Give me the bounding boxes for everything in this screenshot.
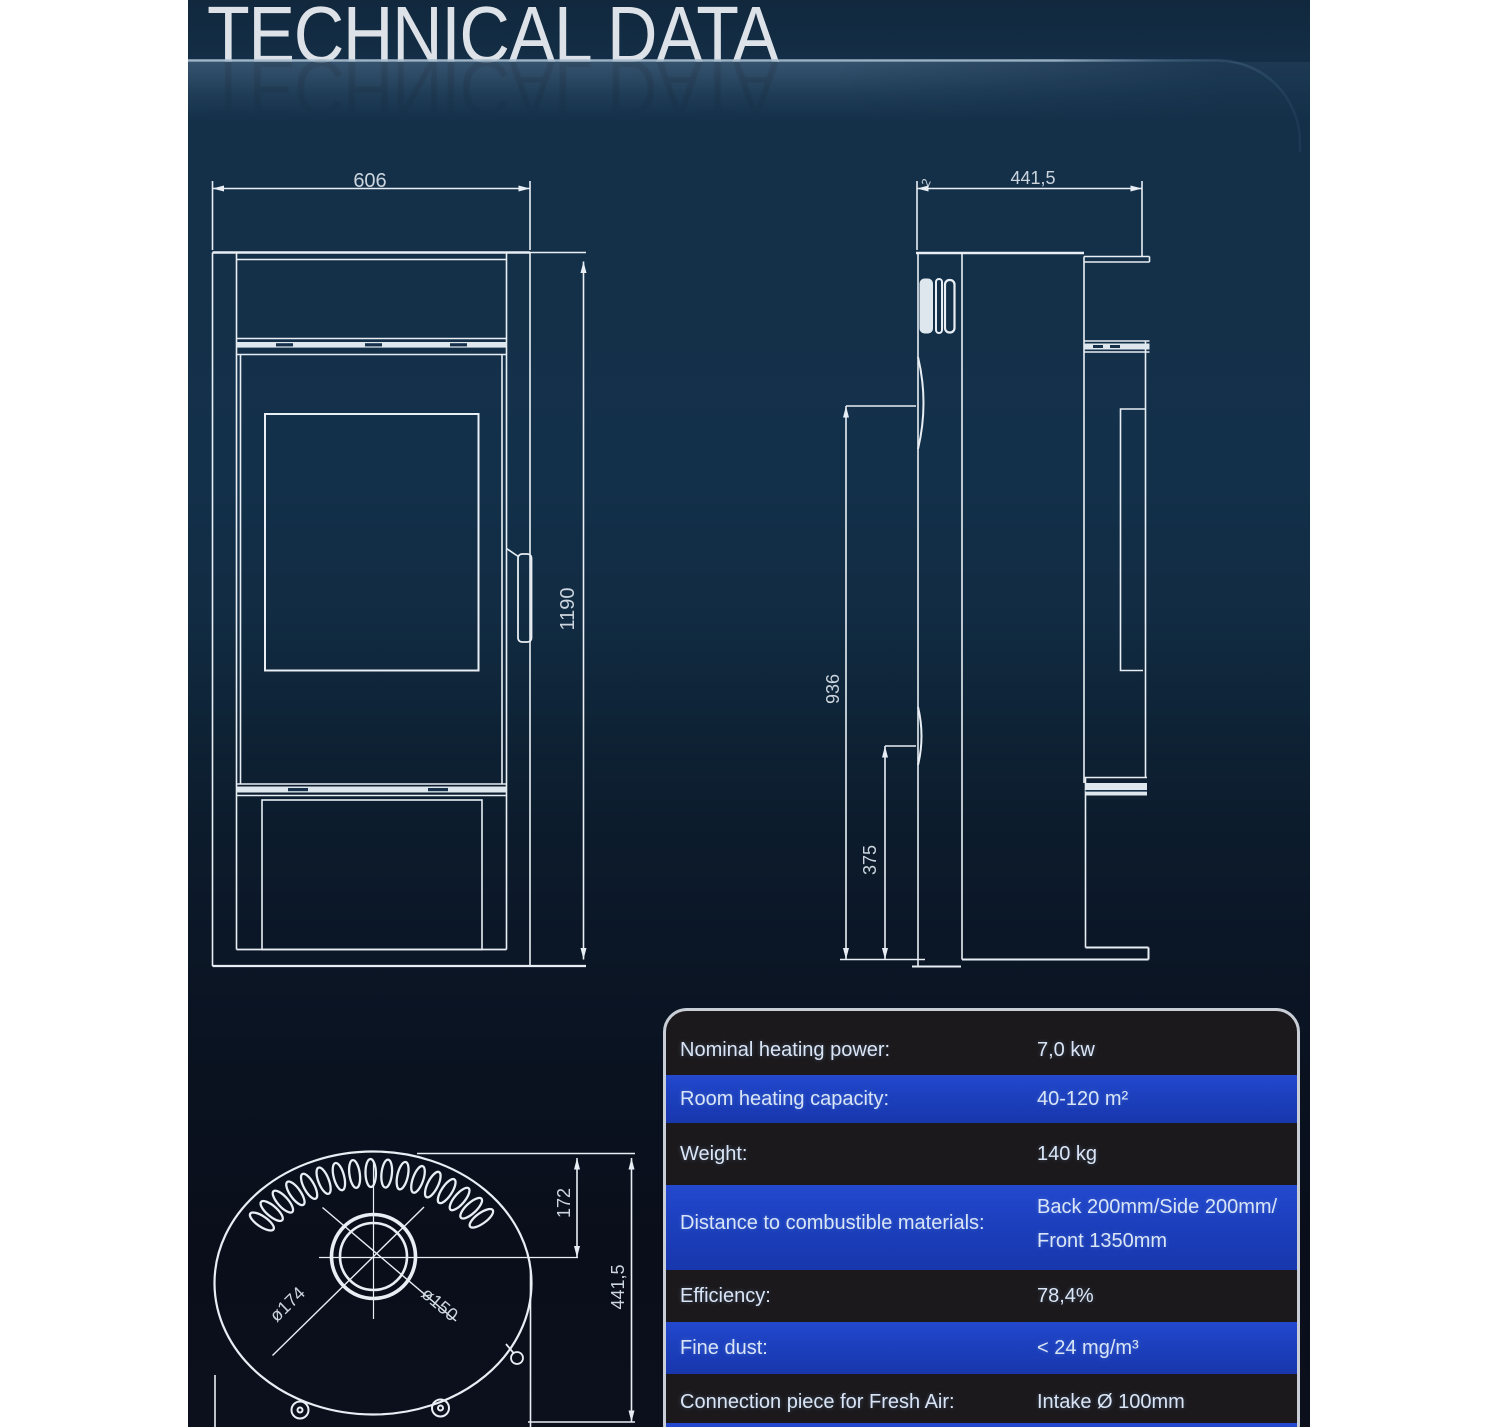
svg-text:ø150: ø150 (417, 1283, 461, 1325)
svg-text:441,5: 441,5 (608, 1264, 628, 1309)
svg-text:1190: 1190 (557, 587, 579, 630)
svg-text:936: 936 (823, 674, 843, 704)
svg-text:375: 375 (860, 845, 880, 875)
svg-text:441,5: 441,5 (1010, 168, 1055, 188)
svg-text:172: 172 (554, 1188, 574, 1218)
svg-text:ø174: ø174 (266, 1283, 309, 1326)
